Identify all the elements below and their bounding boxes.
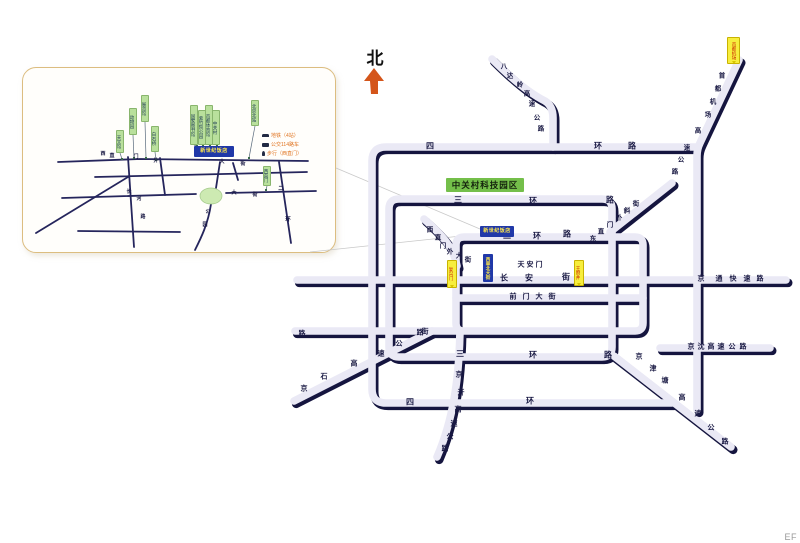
dongzhimenwai-xiejie-char: 东 — [590, 234, 597, 243]
south-street-char-char: 街 — [421, 327, 429, 336]
dongzhimenwai-xiejie-char: 门 — [607, 220, 614, 229]
jingkai-expressway-char: 高 — [455, 405, 462, 414]
south-street-end-char: 路 — [299, 329, 307, 338]
landmark-label-9: 西直门 — [263, 166, 271, 186]
jingshen-expressway-char: 沈 — [698, 342, 705, 351]
jingjintang-expressway-char: 速 — [695, 409, 702, 418]
badaling-expressway-char: 公 — [534, 114, 541, 122]
airport-expressway-char: 高 — [695, 126, 702, 135]
changan-street-char: 街 — [561, 272, 570, 282]
ring3-north-char: 路 — [606, 195, 615, 205]
north-indicator: 北 — [362, 50, 388, 68]
landmark-label-1: 动物园 — [129, 108, 137, 135]
jingshi-expressway-char: 公 — [396, 340, 403, 348]
jingjintang-expressway-char: 塘 — [662, 376, 669, 385]
jingkai-expressway-char: 路 — [442, 444, 450, 453]
changan-street-char: 长 — [500, 273, 509, 283]
changan-street-char: 安 — [525, 273, 533, 283]
qianmen-street-char: 前 — [510, 292, 517, 301]
legend-row-1: 公交114路车 — [262, 140, 332, 149]
jingtong-expressway-char: 通 — [716, 274, 724, 283]
jingtong-expressway-char: 路 — [757, 274, 765, 283]
badaling-expressway-char: 速 — [529, 99, 536, 108]
badaling-expressway-char: 岭 — [517, 80, 524, 89]
station-label-wangfujing: 王府井 — [574, 260, 584, 286]
landmark-label-0: 天文馆 — [116, 130, 124, 153]
north-arrow-icon — [364, 68, 384, 94]
tiananmen-char: 门 — [536, 260, 543, 269]
landmark-label-8: 北京北站 — [251, 100, 259, 126]
walk-icon — [262, 151, 265, 157]
jingtong-expressway-char: 快 — [730, 274, 738, 283]
jingjintang-expressway-char: 京 — [636, 352, 643, 361]
badaling-expressway-char: 路 — [538, 124, 545, 133]
jingjintang-expressway-char: 公 — [708, 424, 715, 432]
station-label-fuxingmen: 复兴门 — [447, 260, 457, 288]
bus-icon — [262, 143, 269, 147]
qianmen-street-char: 街 — [548, 292, 556, 301]
jingshen-expressway-char: 公 — [729, 343, 736, 351]
beijing-route-map: 四环路三环路二环路三环路四环长安街前门大街天安门西直门外大街东直门外斜街京通快速… — [0, 0, 800, 543]
area-label-zhongguancun: 中关村科技园区 — [446, 178, 524, 192]
qianmen-street-char: 大 — [536, 292, 543, 301]
airport-expressway-char: 路 — [672, 167, 679, 176]
jingjintang-expressway-char: 路 — [722, 437, 730, 446]
jingkai-expressway-char: 公 — [447, 433, 454, 441]
road-shadow-layer — [296, 62, 788, 460]
legend-row-0: 地铁（4站） — [262, 131, 332, 140]
landmark-label-3: 白石桥 — [151, 126, 159, 152]
tiananmen-char: 天 — [518, 261, 526, 269]
xizhimenwai-street-char: 西 — [427, 226, 434, 234]
ring4-north-char: 路 — [628, 141, 637, 151]
ring3-south-char: 三 — [456, 350, 464, 359]
dongzhimenwai-xiejie-char: 直 — [598, 227, 605, 236]
marker-hotel-marker-main: 新世纪饭店 — [480, 226, 514, 237]
marker-xidan-street-marker: 西单北大街 — [483, 254, 493, 282]
dongzhimenwai-xiejie-char: 街 — [632, 199, 640, 208]
airport-expressway-char: 都 — [714, 84, 722, 93]
ring4-south-char: 四 — [406, 398, 414, 407]
jingshen-expressway-char: 高 — [708, 342, 715, 351]
airport-expressway-char: 速 — [684, 143, 691, 152]
badaling-expressway-char: 达 — [507, 71, 514, 80]
car-icon — [262, 134, 269, 138]
jingshen-expressway-char: 路 — [740, 342, 748, 351]
legend-text: 地铁（4站） — [271, 132, 299, 139]
station-label-capital-airport: 首都机场 — [727, 37, 740, 64]
ring3-south-char: 路 — [604, 350, 613, 360]
airport-expressway-char: 首 — [719, 71, 726, 80]
ring4-north-char: 四 — [426, 142, 434, 151]
jingkai-expressway-char: 京 — [456, 370, 463, 379]
legend-text: 步行（西直门） — [267, 150, 302, 157]
xizhimenwai-street-char: 外 — [447, 247, 454, 256]
airport-expressway-char: 公 — [678, 156, 685, 164]
jingkai-expressway-char: 开 — [458, 389, 465, 397]
road-light-layer — [294, 59, 786, 457]
legend-text: 公交114路车 — [271, 141, 299, 148]
transport-legend: 地铁（4站）公交114路车步行（西直门） — [262, 131, 332, 158]
landmark-label-4: 国家图书馆 — [190, 105, 198, 145]
dongzhimenwai-xiejie-char: 外 — [616, 213, 623, 222]
ring3-north-char: 三 — [454, 196, 462, 205]
inset-detail-box — [22, 67, 336, 253]
badaling-expressway-char: 高 — [524, 89, 531, 98]
landmark-label-7: 中关村 — [212, 110, 220, 145]
legend-row-2: 步行（西直门） — [262, 149, 332, 158]
landmark-label-2: 展览馆 — [141, 95, 149, 122]
north-label: 北 — [362, 50, 388, 68]
tiananmen-char: 安 — [527, 260, 534, 269]
ring2-north-char: 环 — [533, 232, 541, 241]
jingtong-expressway-char: 京 — [698, 274, 705, 283]
jingtong-expressway-char: 速 — [744, 274, 751, 283]
ring4-north-char: 环 — [594, 142, 602, 151]
jingjintang-expressway-char: 高 — [679, 393, 686, 402]
jingshi-expressway-char: 路 — [417, 328, 425, 337]
xizhimenwai-street-char: 直 — [435, 233, 442, 242]
ring3-south-char: 环 — [529, 351, 537, 360]
qianmen-street-char: 门 — [523, 292, 530, 301]
jingshen-expressway-char: 京 — [688, 342, 695, 351]
hotel-label-inset: 新世纪饭店 — [194, 146, 234, 157]
footer-code: EF — [784, 532, 797, 542]
jingshi-expressway-char: 京 — [301, 384, 308, 393]
jingshi-expressway-char: 石 — [320, 373, 328, 381]
airport-expressway-char: 场 — [705, 110, 712, 119]
ring4-south-char: 环 — [526, 397, 534, 406]
ring2-north-char: 路 — [563, 229, 572, 239]
jingshen-expressway-char: 速 — [718, 342, 725, 351]
ring3-north-char: 环 — [529, 197, 537, 206]
badaling-expressway-char: 八 — [500, 63, 508, 71]
jingshi-expressway-char: 高 — [351, 359, 358, 368]
xizhimenwai-street-char: 门 — [440, 241, 447, 250]
jingjintang-expressway-char: 津 — [650, 364, 657, 373]
jingkai-expressway-char: 速 — [451, 419, 458, 428]
dongzhimenwai-xiejie-char: 斜 — [623, 206, 631, 215]
xizhimenwai-street-char: 大 — [456, 251, 463, 260]
jingshi-expressway-char: 速 — [378, 349, 385, 358]
xizhimenwai-street-char: 街 — [464, 255, 472, 264]
main-road-name-glyphs: 四环路三环路二环路三环路四环长安街前门大街天安门西直门外大街东直门外斜街京通快速… — [299, 63, 765, 453]
airport-expressway-char: 机 — [710, 97, 717, 106]
